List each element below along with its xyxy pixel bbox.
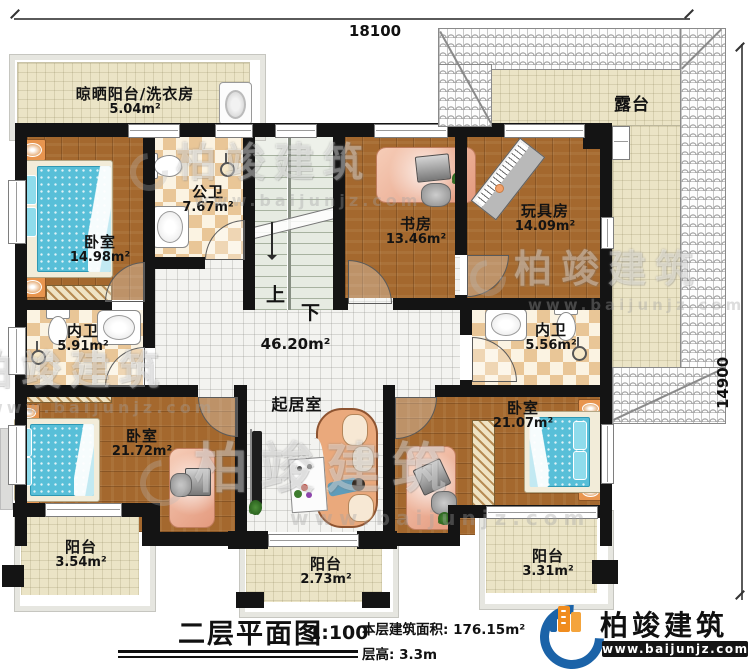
wall — [228, 531, 268, 549]
room-name: 阳台 — [503, 548, 593, 565]
plan-title: 二层平面图 — [178, 612, 323, 651]
dimension-line-right — [741, 44, 743, 600]
room-label-laundry: 晾晒阳台/洗衣房 5.04m² — [35, 86, 235, 117]
floor-plan: 晾晒阳台/洗衣房 5.04m² 露台 卧室 14.98m² 公卫 7.67m² … — [0, 0, 750, 670]
pillow — [573, 451, 587, 480]
stairs-down-text: 下 — [297, 303, 325, 324]
computer-monitor-icon — [415, 153, 452, 182]
room-area: 7.67m² — [163, 201, 253, 216]
window — [128, 124, 180, 138]
room-name: 露台 — [602, 96, 662, 115]
sofa-cushion — [348, 494, 374, 522]
closet — [472, 420, 495, 506]
flower-icon — [294, 490, 302, 498]
cup — [307, 464, 312, 469]
room-name: 书房 — [371, 216, 461, 233]
logo-window-dash — [561, 622, 566, 624]
wall — [455, 298, 612, 310]
wall — [460, 298, 472, 335]
room-area: 2.73m² — [281, 573, 371, 588]
room-area: 13.46m² — [371, 233, 461, 248]
room-label-balcony-right: 阳台 3.31m² — [503, 548, 593, 579]
wall — [234, 385, 247, 397]
room-area: 21.07m² — [478, 417, 568, 432]
window — [504, 124, 585, 138]
room-label-bedroom-right: 卧室 21.07m² — [478, 400, 568, 431]
logo-building-icon — [571, 612, 581, 632]
stair-arrow — [271, 222, 273, 256]
window — [374, 124, 448, 138]
room-area: 3.31m² — [503, 565, 593, 580]
window — [601, 217, 614, 249]
bed-mattress — [30, 424, 94, 496]
room-name: 内卫 — [506, 322, 596, 339]
room-area: 3.54m² — [36, 556, 126, 571]
logo-window-dash — [561, 616, 566, 618]
wall — [435, 385, 612, 397]
cup — [297, 466, 302, 471]
wall — [143, 310, 155, 348]
room-name: 公卫 — [163, 184, 253, 201]
pillar — [236, 592, 264, 608]
french-door — [268, 534, 359, 547]
wall — [383, 533, 460, 546]
chair — [421, 183, 451, 207]
sofa-cushion — [342, 414, 368, 446]
logo-url: www.baijunjz.com — [602, 641, 748, 657]
pillar — [362, 592, 390, 608]
room-area: 5.56m² — [506, 339, 596, 354]
wall — [142, 503, 160, 546]
window — [215, 124, 253, 138]
room-label-bedroom-left: 卧室 21.72m² — [97, 428, 187, 459]
room-label-ensuite-right: 内卫 5.56m² — [506, 322, 596, 353]
flower-icon — [306, 492, 312, 498]
terrace-door-threshold — [612, 126, 630, 160]
floor-area-text: 本层建筑面积: 176.15m² — [362, 618, 525, 638]
pillar — [2, 565, 24, 587]
wall — [333, 298, 348, 310]
dimension-label-top: 18100 — [340, 22, 410, 40]
logo-name: 柏竣建筑 — [600, 604, 728, 644]
window — [8, 327, 26, 375]
room-name: 卧室 — [478, 400, 568, 417]
title-underline — [118, 656, 358, 658]
window — [275, 124, 317, 138]
room-area: 46.20m² — [248, 336, 343, 353]
room-area: 21.72m² — [97, 445, 187, 460]
shower-icon — [220, 162, 235, 177]
toilet-bowl — [154, 155, 182, 177]
room-name: 阳台 — [281, 556, 371, 573]
logo-building-icon — [550, 616, 557, 632]
person-head — [352, 478, 365, 491]
tv-icon — [252, 431, 262, 505]
room-name: 起居室 — [252, 396, 342, 414]
french-door — [45, 503, 122, 517]
room-label-ensuite-left: 内卫 5.91m² — [38, 323, 128, 354]
room-label-public-bath: 公卫 7.67m² — [163, 184, 253, 215]
window — [8, 425, 26, 485]
room-name: 玩具房 — [500, 203, 590, 220]
stairs-down-label: 下 — [297, 303, 325, 324]
flower-icon — [301, 484, 308, 491]
window — [601, 424, 614, 484]
room-name: 阳台 — [36, 539, 126, 556]
room-area: 5.91m² — [38, 340, 128, 355]
pillow — [573, 421, 587, 450]
stairs-up-text: 上 — [262, 285, 290, 306]
pillar — [592, 560, 618, 584]
floor-height-text: 层高: 3.3m — [362, 643, 437, 663]
room-label-balcony-left: 阳台 3.54m² — [36, 539, 126, 570]
wall — [243, 123, 255, 310]
wall — [15, 300, 112, 310]
window — [8, 180, 26, 244]
room-name: 内卫 — [38, 323, 128, 340]
terrace-floor — [612, 125, 682, 369]
room-label-terrace: 露台 — [602, 96, 662, 115]
room-label-living: 起居室 — [252, 396, 342, 414]
living-area-label: 46.20m² — [248, 336, 343, 353]
ball — [495, 184, 504, 193]
plan-scale: 1:100 — [308, 622, 368, 644]
logo-window-dash — [561, 610, 566, 612]
room-label-balcony-center: 阳台 2.73m² — [281, 556, 371, 587]
room-area: 5.04m² — [35, 103, 235, 118]
wall — [143, 257, 205, 269]
dimension-label-right: 14900 — [714, 340, 732, 426]
stairs-up-label: 上 — [262, 285, 290, 306]
room-area: 14.09m² — [500, 220, 590, 235]
room-label-bedroom-top: 卧室 14.98m² — [55, 234, 145, 265]
stair-arrow-head — [267, 255, 277, 265]
dimension-tick — [735, 42, 745, 52]
window — [486, 506, 598, 519]
sofa-cushion — [352, 446, 374, 472]
wall — [13, 503, 45, 517]
dimension-line-top — [14, 18, 690, 20]
room-name: 卧室 — [55, 234, 145, 251]
plant-icon — [249, 500, 262, 515]
wall — [383, 385, 395, 533]
chair — [170, 473, 192, 497]
room-label-study: 书房 13.46m² — [371, 216, 461, 247]
room-label-toy-room: 玩具房 14.09m² — [500, 203, 590, 234]
wall — [333, 123, 345, 310]
room-area: 14.98m² — [55, 251, 145, 266]
room-name: 卧室 — [97, 428, 187, 445]
dimension-tick — [735, 590, 745, 600]
room-name: 晾晒阳台/洗衣房 — [35, 86, 235, 103]
title-underline — [118, 650, 358, 653]
wall — [393, 298, 455, 310]
wall — [448, 505, 460, 533]
